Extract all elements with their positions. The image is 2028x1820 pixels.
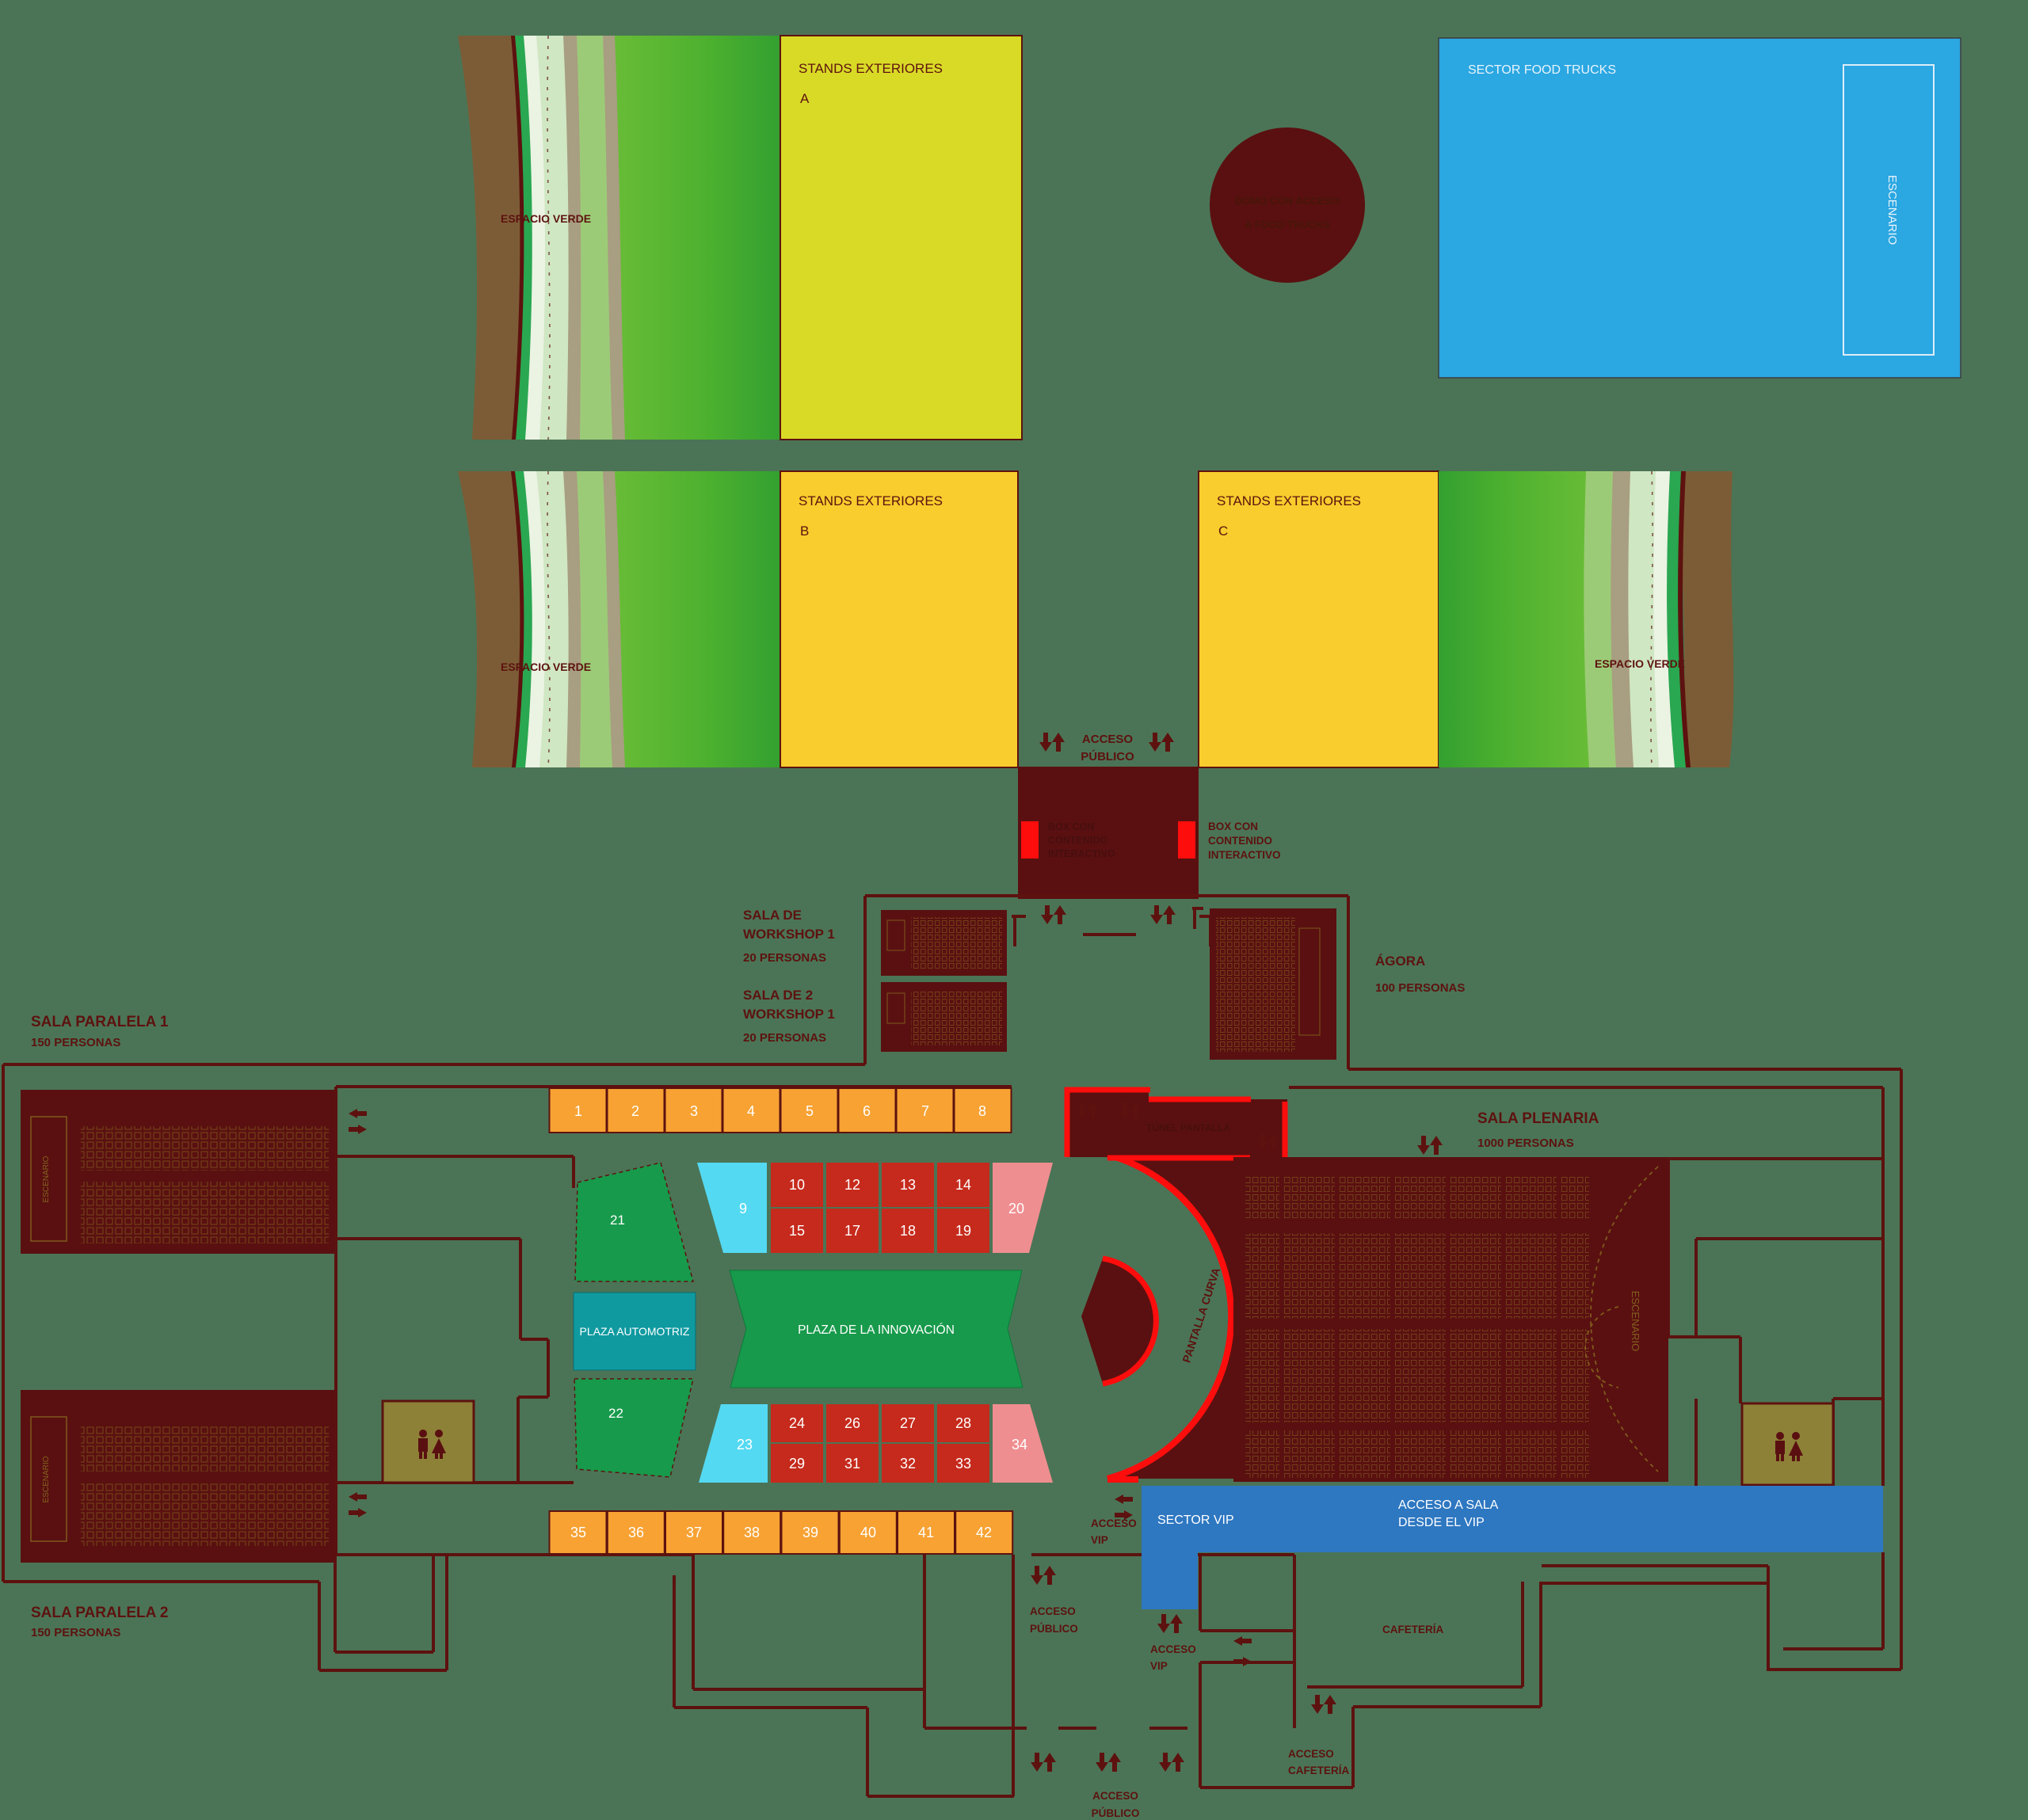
svg-text:B: B — [800, 524, 809, 539]
svg-text:CONTENIDO: CONTENIDO — [1048, 835, 1107, 846]
svg-text:28: 28 — [955, 1415, 971, 1431]
svg-text:DESDE EL VIP: DESDE EL VIP — [1398, 1516, 1485, 1529]
svg-text:15: 15 — [789, 1223, 805, 1239]
svg-text:5: 5 — [806, 1103, 814, 1119]
svg-text:35: 35 — [570, 1525, 586, 1540]
svg-text:1: 1 — [574, 1103, 582, 1119]
svg-text:ACCESO: ACCESO — [1091, 1517, 1137, 1529]
svg-text:ACCESO: ACCESO — [1288, 1748, 1334, 1760]
svg-text:ESPACIO VERDE: ESPACIO VERDE — [1595, 657, 1685, 670]
svg-text:41: 41 — [918, 1525, 934, 1540]
svg-text:26: 26 — [844, 1415, 860, 1431]
svg-text:8: 8 — [978, 1103, 986, 1119]
svg-text:20 PERSONAS: 20 PERSONAS — [743, 1031, 826, 1045]
svg-text:INTERACTIVO: INTERACTIVO — [1208, 849, 1281, 861]
svg-text:SALA PARALELA 1: SALA PARALELA 1 — [31, 1014, 169, 1030]
svg-text:CAFETERÍA: CAFETERÍA — [1382, 1624, 1444, 1635]
svg-text:24: 24 — [789, 1415, 805, 1431]
svg-text:STANDS EXTERIORES: STANDS EXTERIORES — [1217, 493, 1361, 508]
svg-text:37: 37 — [686, 1525, 702, 1540]
svg-text:9: 9 — [739, 1201, 747, 1217]
svg-text:PLAZA AUTOMOTRIZ: PLAZA AUTOMOTRIZ — [580, 1325, 690, 1338]
svg-text:3: 3 — [690, 1103, 698, 1119]
svg-text:32: 32 — [900, 1456, 916, 1472]
svg-text:BOX CON: BOX CON — [1048, 821, 1094, 832]
svg-text:150 PERSONAS: 150 PERSONAS — [31, 1036, 120, 1049]
svg-text:ESCENARIO: ESCENARIO — [42, 1156, 51, 1202]
svg-text:TÚNEL PANTALLA: TÚNEL PANTALLA — [1146, 1121, 1230, 1133]
svg-text:SALA PARALELA 2: SALA PARALELA 2 — [31, 1605, 168, 1621]
svg-text:PÚBLICO: PÚBLICO — [1092, 1807, 1140, 1819]
svg-text:39: 39 — [802, 1525, 818, 1540]
svg-text:ACCESO: ACCESO — [1150, 1643, 1196, 1655]
svg-text:20 PERSONAS: 20 PERSONAS — [743, 951, 826, 965]
svg-text:PÚBLICO: PÚBLICO — [1030, 1623, 1078, 1635]
svg-text:A FOOD TRUCKS: A FOOD TRUCKS — [1245, 219, 1330, 230]
svg-text:1000 PERSONAS: 1000 PERSONAS — [1477, 1137, 1574, 1150]
svg-text:CAFETERÍA: CAFETERÍA — [1288, 1765, 1350, 1776]
svg-text:ACCESO: ACCESO — [1082, 733, 1134, 746]
svg-text:19: 19 — [955, 1223, 971, 1239]
svg-text:36: 36 — [628, 1525, 644, 1540]
svg-text:7: 7 — [921, 1103, 929, 1119]
svg-text:6: 6 — [863, 1103, 871, 1119]
svg-text:13: 13 — [900, 1177, 916, 1193]
svg-text:34: 34 — [1012, 1437, 1027, 1453]
svg-text:10: 10 — [789, 1177, 805, 1193]
svg-text:CONTENIDO: CONTENIDO — [1208, 835, 1272, 847]
svg-text:ÁGORA: ÁGORA — [1375, 954, 1425, 969]
svg-text:33: 33 — [955, 1456, 971, 1472]
svg-text:40: 40 — [860, 1525, 876, 1540]
svg-text:WORKSHOP 1: WORKSHOP 1 — [743, 927, 835, 942]
svg-text:SECTOR FOOD TRUCKS: SECTOR FOOD TRUCKS — [1468, 63, 1616, 77]
svg-text:SECTOR VIP: SECTOR VIP — [1157, 1513, 1234, 1527]
svg-text:ACCESO: ACCESO — [1030, 1605, 1076, 1617]
svg-text:ESPACIO VERDE: ESPACIO VERDE — [501, 212, 591, 225]
svg-text:WORKSHOP 1: WORKSHOP 1 — [743, 1007, 835, 1022]
svg-text:18: 18 — [900, 1223, 916, 1239]
svg-text:ESCENARIO: ESCENARIO — [42, 1456, 51, 1502]
svg-text:23: 23 — [737, 1437, 753, 1453]
svg-text:17: 17 — [844, 1223, 860, 1239]
svg-text:PLAZA DE LA INNOVACIÓN: PLAZA DE LA INNOVACIÓN — [798, 1323, 955, 1337]
svg-text:STANDS EXTERIORES: STANDS EXTERIORES — [799, 493, 943, 508]
svg-text:2: 2 — [631, 1103, 639, 1119]
svg-text:VIP: VIP — [1091, 1534, 1108, 1546]
svg-text:SALA DE 2: SALA DE 2 — [743, 988, 813, 1003]
svg-text:29: 29 — [789, 1456, 805, 1472]
svg-text:22: 22 — [608, 1406, 623, 1421]
svg-text:BOX CON: BOX CON — [1208, 821, 1258, 832]
svg-text:ACCESO A SALA: ACCESO A SALA — [1398, 1498, 1499, 1512]
svg-text:ESCENARIO: ESCENARIO — [1885, 175, 1899, 245]
svg-text:PÚBLICO: PÚBLICO — [1081, 749, 1134, 763]
svg-text:STANDS EXTERIORES: STANDS EXTERIORES — [799, 61, 943, 76]
svg-text:31: 31 — [844, 1456, 860, 1472]
svg-text:14: 14 — [955, 1177, 971, 1193]
svg-text:20: 20 — [1008, 1201, 1024, 1217]
svg-text:12: 12 — [844, 1177, 860, 1193]
svg-text:VIP: VIP — [1150, 1660, 1168, 1672]
svg-text:27: 27 — [900, 1415, 916, 1431]
svg-text:C: C — [1218, 524, 1228, 539]
svg-text:ESPACIO VERDE: ESPACIO VERDE — [501, 661, 591, 673]
svg-text:SALA DE: SALA DE — [743, 908, 802, 923]
svg-text:38: 38 — [744, 1525, 760, 1540]
svg-text:ESCENARIO: ESCENARIO — [1630, 1291, 1641, 1352]
svg-text:DOMO CON ACCESO: DOMO CON ACCESO — [1235, 195, 1340, 207]
svg-text:4: 4 — [747, 1103, 755, 1119]
svg-text:ACCESO: ACCESO — [1092, 1790, 1138, 1802]
svg-text:150 PERSONAS: 150 PERSONAS — [31, 1626, 120, 1639]
svg-text:A: A — [800, 91, 810, 106]
svg-text:100 PERSONAS: 100 PERSONAS — [1375, 981, 1465, 995]
svg-text:INTERACTIVO: INTERACTIVO — [1048, 848, 1115, 859]
svg-text:42: 42 — [976, 1525, 992, 1540]
svg-text:21: 21 — [610, 1213, 625, 1228]
svg-text:SALA PLENARIA: SALA PLENARIA — [1477, 1110, 1599, 1127]
